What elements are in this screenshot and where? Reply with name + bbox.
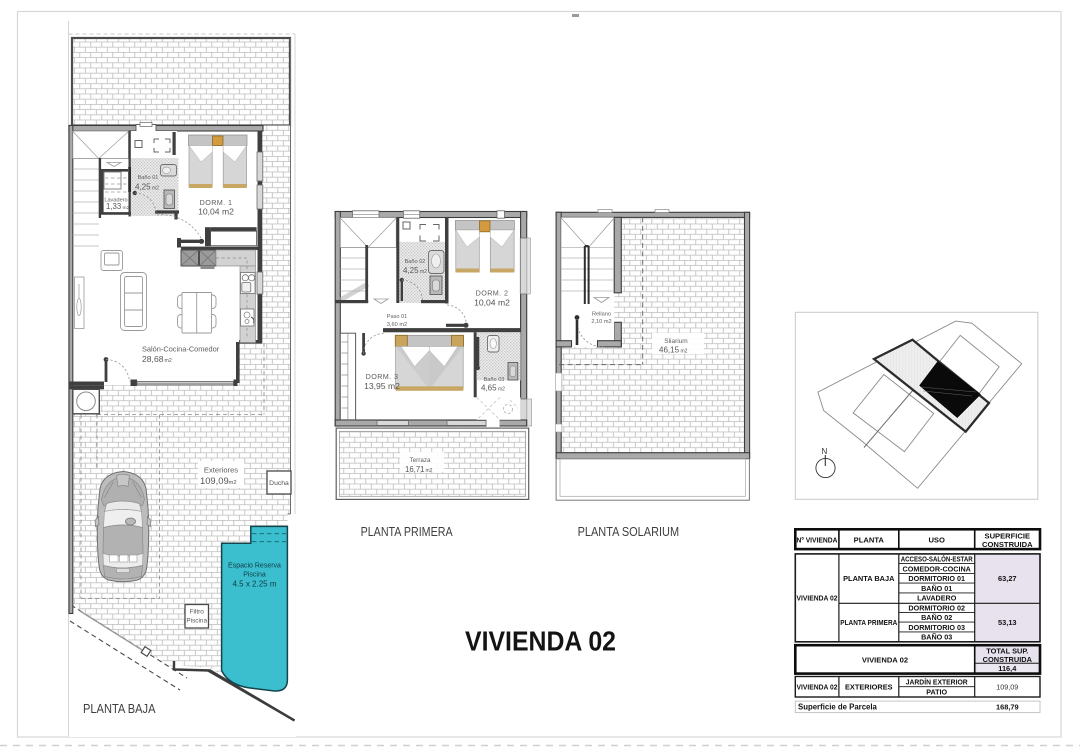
svg-text:m2: m2 — [681, 349, 688, 355]
svg-text:m2: m2 — [152, 186, 159, 192]
svg-text:Piscina: Piscina — [243, 572, 266, 579]
svg-text:VIVIENDA 02: VIVIENDA 02 — [465, 626, 616, 657]
svg-text:1,33: 1,33 — [106, 202, 121, 211]
svg-text:10,04 m2: 10,04 m2 — [474, 298, 510, 308]
svg-text:4.5 x 2.25 m: 4.5 x 2.25 m — [232, 580, 276, 589]
svg-text:16,71: 16,71 — [405, 465, 425, 474]
svg-text:Exteriores: Exteriores — [204, 466, 238, 475]
svg-text:VIVIENDA 02: VIVIENDA 02 — [797, 594, 838, 603]
svg-text:Baño 01: Baño 01 — [138, 175, 159, 181]
svg-text:DORMITORIO 01: DORMITORIO 01 — [908, 574, 965, 583]
svg-text:PLANTA BAJA: PLANTA BAJA — [83, 702, 156, 716]
svg-text:VIVIENDA 02: VIVIENDA 02 — [862, 655, 908, 664]
svg-text:168,79: 168,79 — [996, 703, 1019, 712]
svg-text:53,13: 53,13 — [998, 618, 1017, 627]
svg-text:10,04 m2: 10,04 m2 — [198, 207, 234, 217]
svg-text:JARDÍN EXTERIOR: JARDÍN EXTERIOR — [906, 678, 969, 687]
svg-text:46,15: 46,15 — [659, 346, 680, 355]
svg-text:Filtro: Filtro — [190, 609, 205, 616]
svg-text:PATIO: PATIO — [926, 688, 947, 697]
svg-text:N: N — [822, 447, 828, 456]
svg-text:116,4: 116,4 — [998, 664, 1017, 673]
svg-text:PLANTA: PLANTA — [854, 535, 885, 544]
svg-text:Paso 01: Paso 01 — [387, 314, 408, 320]
svg-text:m2: m2 — [420, 269, 427, 275]
svg-text:DORMITORIO 03: DORMITORIO 03 — [908, 623, 965, 632]
svg-text:m2: m2 — [165, 358, 172, 364]
svg-text:USO: USO — [928, 535, 945, 544]
svg-text:4,25: 4,25 — [135, 183, 151, 192]
svg-text:BAÑO 02: BAÑO 02 — [921, 613, 952, 622]
svg-text:2,10 m2: 2,10 m2 — [591, 319, 611, 325]
svg-text:Nº VIVIENDA: Nº VIVIENDA — [797, 535, 838, 544]
svg-text:m2: m2 — [498, 387, 505, 393]
svg-text:CONSTRUIDA: CONSTRUIDA — [982, 540, 1033, 549]
svg-text:4,25: 4,25 — [403, 266, 419, 275]
svg-text:109,09: 109,09 — [200, 475, 229, 486]
svg-text:3,60 m2: 3,60 m2 — [387, 322, 407, 328]
svg-text:Piscina: Piscina — [186, 618, 207, 625]
svg-text:DORMITORIO 02: DORMITORIO 02 — [908, 603, 965, 612]
svg-text:PLANTA PRIMERA: PLANTA PRIMERA — [840, 618, 897, 627]
svg-text:Ducha: Ducha — [269, 480, 289, 487]
svg-text:m2: m2 — [229, 480, 237, 486]
svg-text:BAÑO 01: BAÑO 01 — [921, 584, 952, 593]
svg-text:Superficie de Parcela: Superficie de Parcela — [798, 703, 878, 712]
svg-text:DORM. 2: DORM. 2 — [476, 289, 509, 298]
svg-text:28,68: 28,68 — [142, 354, 164, 364]
svg-text:LAVADERO: LAVADERO — [917, 594, 957, 603]
svg-text:ACCESO-SALÓN-ESTAR: ACCESO-SALÓN-ESTAR — [901, 555, 974, 564]
svg-text:CONSTRUIDA: CONSTRUIDA — [983, 655, 1033, 664]
svg-text:EXTERIORES: EXTERIORES — [845, 683, 893, 692]
svg-text:PLANTA PRIMERA: PLANTA PRIMERA — [361, 525, 454, 539]
svg-text:Baño 02: Baño 02 — [405, 259, 426, 265]
svg-text:63,27: 63,27 — [998, 574, 1017, 583]
svg-text:PLANTA SOLARIUM: PLANTA SOLARIUM — [578, 525, 680, 539]
svg-text:PLANTA BAJA: PLANTA BAJA — [843, 574, 895, 583]
svg-text:Salón-Cocina-Comedor: Salón-Cocina-Comedor — [142, 345, 220, 354]
svg-text:COMEDOR-COCINA: COMEDOR-COCINA — [903, 564, 971, 573]
svg-text:109,09: 109,09 — [996, 683, 1018, 692]
svg-text:4,65: 4,65 — [481, 384, 497, 393]
svg-text:Terraza: Terraza — [410, 457, 431, 464]
svg-text:Rellano: Rellano — [592, 312, 611, 318]
svg-text:DORM. 3: DORM. 3 — [366, 372, 399, 381]
svg-text:VIVIENDA 02: VIVIENDA 02 — [797, 683, 838, 692]
svg-text:m2: m2 — [123, 205, 130, 211]
svg-text:Sliarium: Sliarium — [664, 338, 687, 345]
svg-text:Baño 03: Baño 03 — [484, 377, 505, 383]
svg-text:Espacio Reserva: Espacio Reserva — [228, 563, 281, 570]
svg-text:BAÑO 03: BAÑO 03 — [921, 633, 952, 642]
svg-text:13,95 m2: 13,95 m2 — [364, 381, 400, 391]
svg-text:m2: m2 — [426, 468, 433, 474]
